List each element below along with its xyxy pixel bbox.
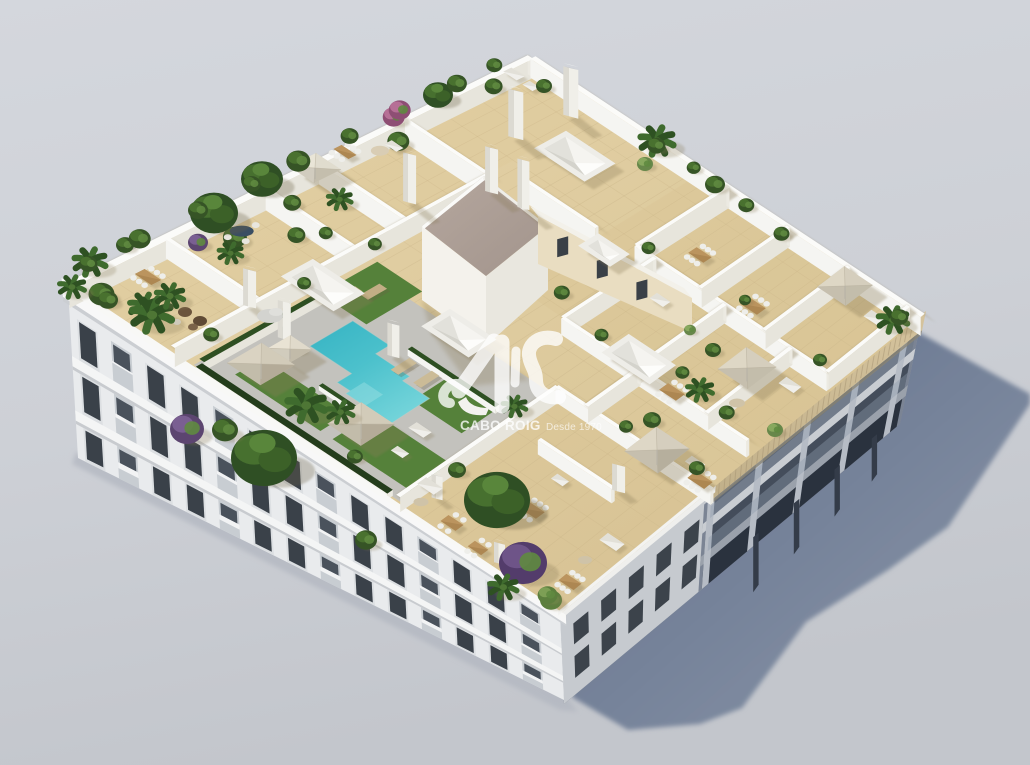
svg-text:CABO ROIG: CABO ROIG bbox=[460, 418, 541, 433]
svg-text:Desde 1970: Desde 1970 bbox=[546, 422, 602, 433]
